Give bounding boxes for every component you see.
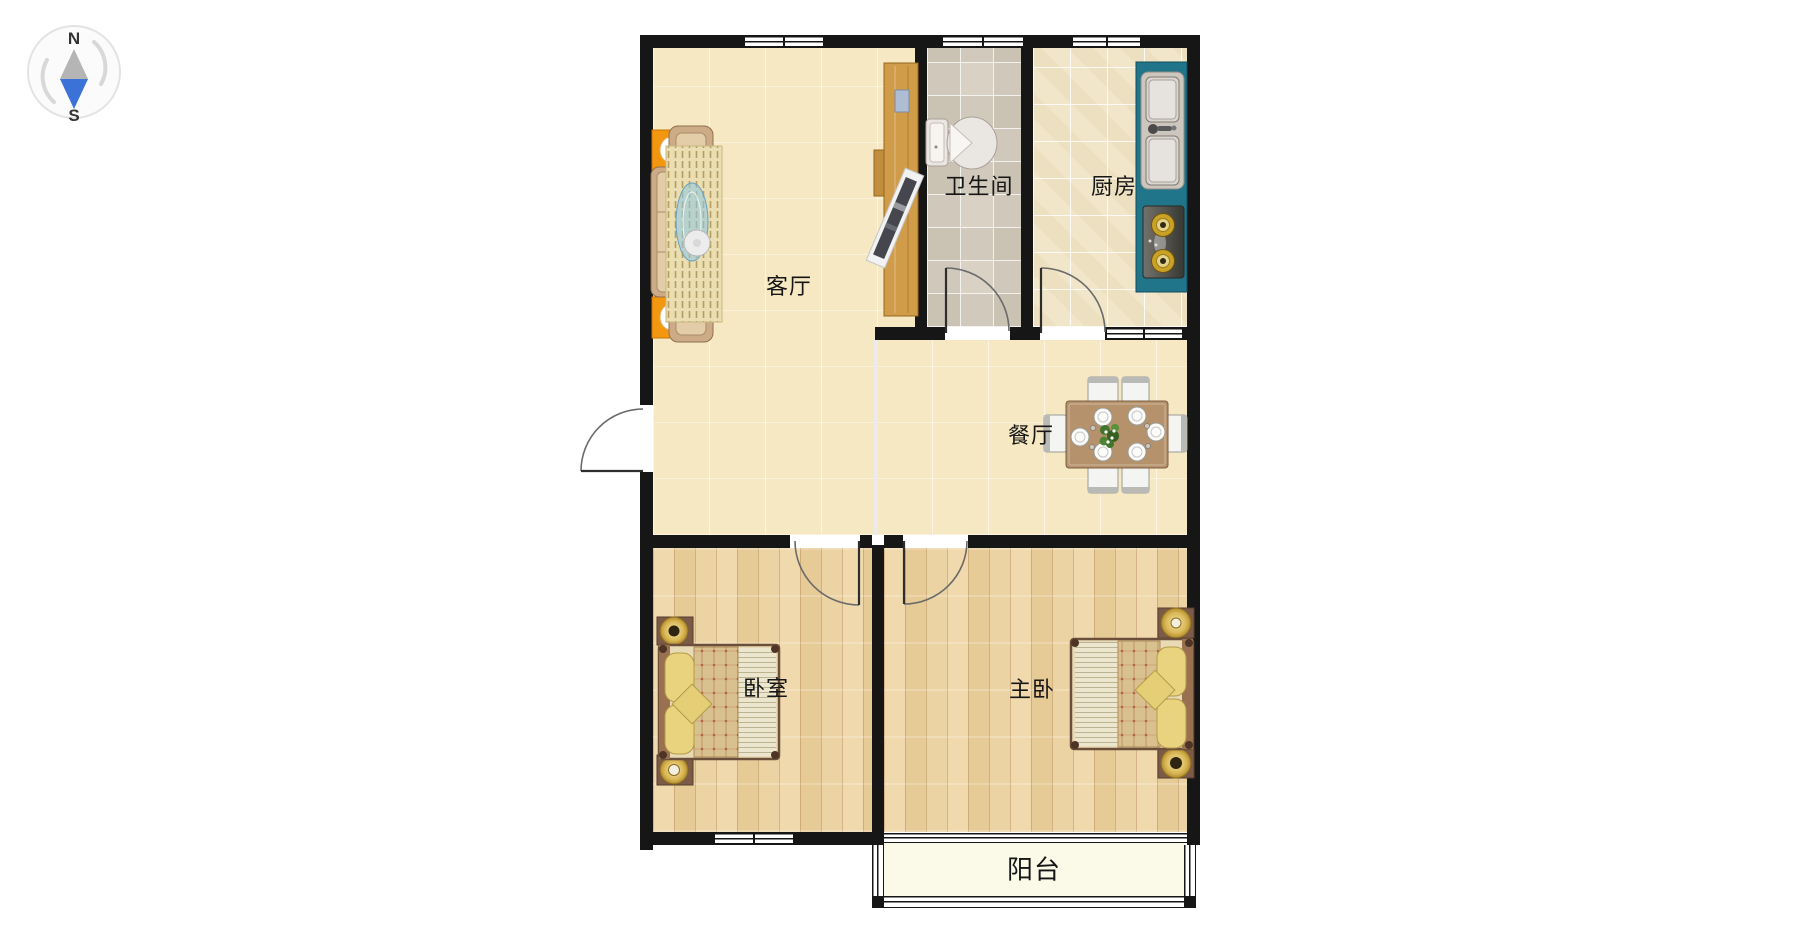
dining-room-label: 餐厅 <box>1008 418 1054 450</box>
master-bed <box>1071 608 1194 778</box>
master-door <box>904 541 967 604</box>
entry-door <box>581 409 643 471</box>
kitchen-label: 厨房 <box>1091 169 1137 201</box>
bathroom-door <box>946 268 1009 333</box>
bathroom-label: 卫生间 <box>944 169 1013 201</box>
compass-north-label: N <box>68 29 80 48</box>
dining-chair <box>1122 377 1149 403</box>
furniture-overlay <box>0 0 1793 944</box>
stove <box>1143 206 1184 278</box>
media-box <box>895 90 909 112</box>
balcony-label: 阳台 <box>1007 850 1061 887</box>
nightstand <box>1158 748 1194 778</box>
nightstand <box>1158 608 1194 638</box>
kitchen-door <box>1041 268 1105 333</box>
floor-plan-canvas: N S 客厅 卫生间 厨房 餐厅 卧室 主卧 阳台 <box>0 0 1793 944</box>
compass: N S <box>24 22 124 122</box>
master-bedroom-label: 主卧 <box>1009 672 1055 704</box>
dining-chair <box>1122 466 1149 493</box>
nightstand <box>657 617 693 645</box>
bedroom-door <box>795 541 859 605</box>
toilet <box>926 117 997 169</box>
kitchen-sink <box>1141 72 1184 189</box>
living-room-label: 客厅 <box>766 269 812 301</box>
dining-chair <box>1088 377 1118 403</box>
bedroom-label: 卧室 <box>743 671 789 703</box>
dining-set <box>1044 377 1187 493</box>
kitchen-counter <box>1136 62 1187 292</box>
dining-chair <box>1088 466 1118 493</box>
compass-south-label: S <box>68 106 79 122</box>
dining-chair <box>1166 415 1187 452</box>
